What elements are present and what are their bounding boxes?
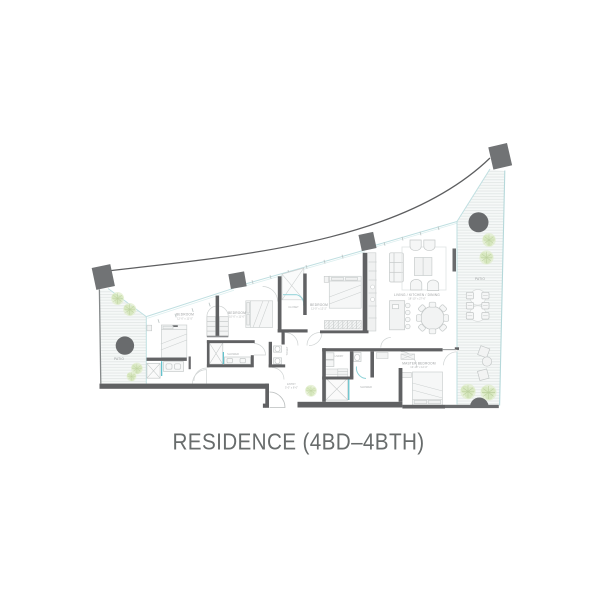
svg-text:11'-0" x 12'-2": 11'-0" x 12'-2" [311,307,327,311]
svg-text:12'-0" x 11'-5": 12'-0" x 11'-5" [177,317,193,321]
svg-text:MASTER BEDROOM: MASTER BEDROOM [402,362,436,366]
svg-text:PATIO: PATIO [114,357,124,361]
svg-text:18'-10" x 27'-6": 18'-10" x 27'-6" [408,297,425,301]
svg-text:BEDROOM: BEDROOM [310,303,328,307]
svg-text:10'-0" x 11'-0": 10'-0" x 11'-0" [229,315,245,319]
svg-text:LIVING / KITCHEN / DINING: LIVING / KITCHEN / DINING [394,293,440,297]
svg-text:5'-0" x 8'-0": 5'-0" x 8'-0" [285,386,298,390]
svg-text:BEDROOM: BEDROOM [228,311,246,315]
svg-text:SHOWER: SHOWER [360,385,372,389]
svg-text:RESIDENCE (4BD–4BTH): RESIDENCE (4BD–4BTH) [173,429,425,455]
svg-text:PATIO: PATIO [475,277,485,281]
svg-text:BEDROOM: BEDROOM [176,313,194,317]
svg-text:TOILET: TOILET [285,346,289,355]
svg-text:ENTRY: ENTRY [287,382,296,386]
svg-text:LNDRY: LNDRY [335,354,344,358]
svg-text:13'-10" x 12'-0": 13'-10" x 12'-0" [410,365,427,369]
svg-text:SHOWER: SHOWER [227,352,239,356]
svg-text:CLOSET: CLOSET [288,305,299,309]
